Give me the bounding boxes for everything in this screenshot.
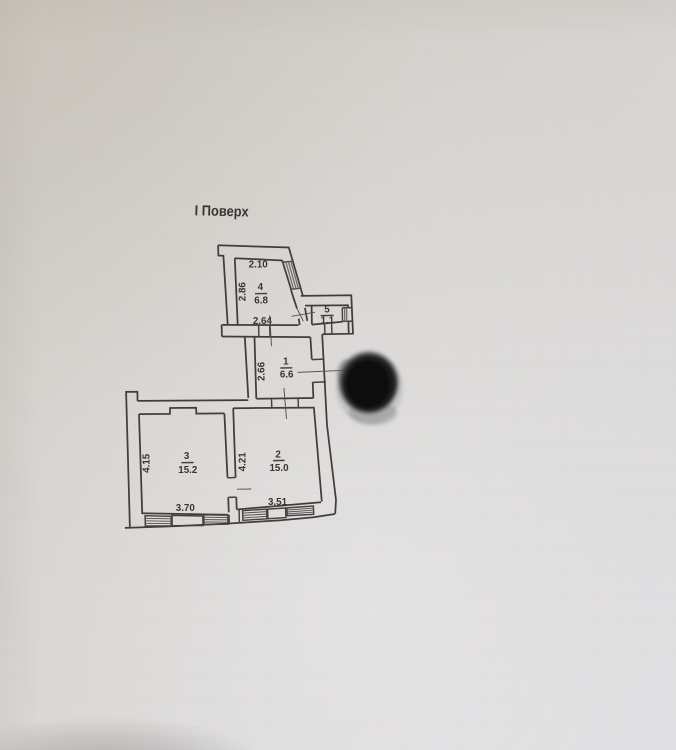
svg-text:4.15: 4.15 [141,453,152,473]
svg-text:1.1: 1.1 [321,315,335,326]
svg-text:3.70: 3.70 [176,503,196,514]
svg-text:15.0: 15.0 [269,463,289,474]
svg-text:5: 5 [324,305,330,316]
svg-text:6.8: 6.8 [254,296,268,307]
svg-text:3.51: 3.51 [268,497,288,508]
svg-text:1: 1 [283,357,289,368]
svg-text:3: 3 [184,451,190,462]
svg-text:2.64: 2.64 [253,316,273,327]
svg-text:15.2: 15.2 [178,465,198,476]
svg-text:2.10: 2.10 [249,260,269,271]
svg-text:4.21: 4.21 [238,452,249,472]
svg-text:2: 2 [275,450,281,461]
svg-text:2.66: 2.66 [257,361,268,381]
svg-text:І Поверх: І Поверх [194,203,249,220]
svg-text:4: 4 [258,282,264,293]
svg-text:2.86: 2.86 [237,282,248,302]
svg-text:6.6: 6.6 [280,370,294,381]
